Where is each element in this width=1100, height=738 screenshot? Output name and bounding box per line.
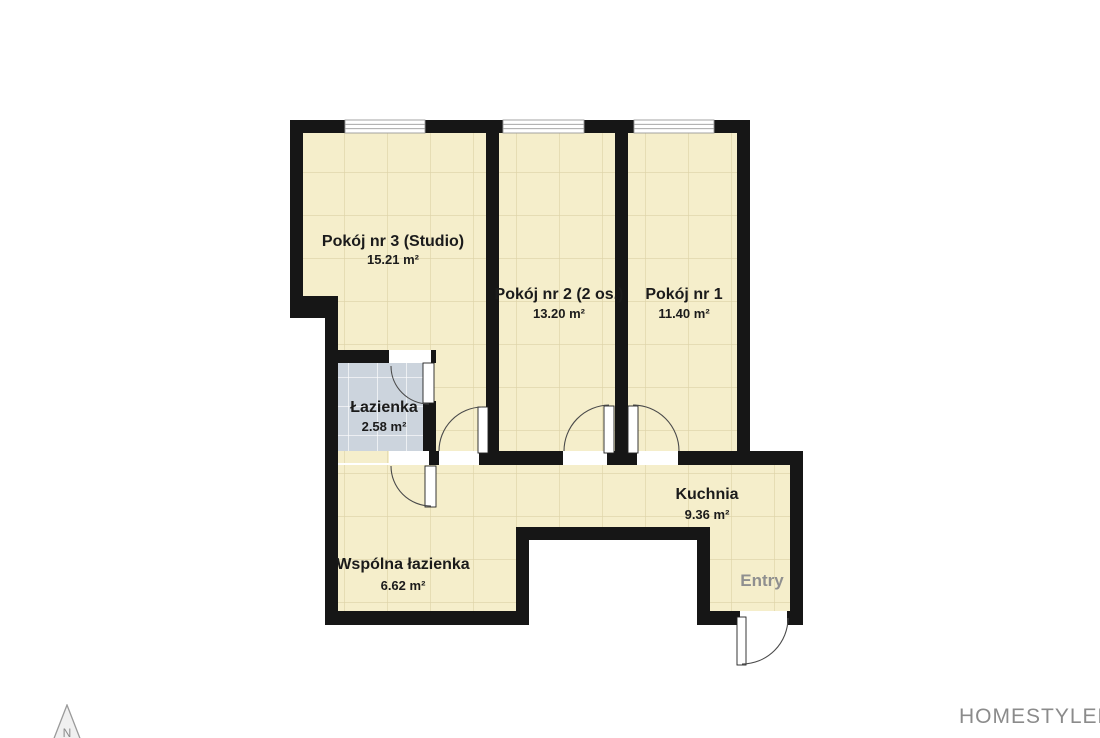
homestyler-logo-icon bbox=[912, 698, 950, 736]
room-name-label: Pokój nr 3 (Studio) bbox=[322, 233, 464, 250]
room-area-label: 2.58 m² bbox=[362, 419, 407, 434]
room-area-label: 15.21 m² bbox=[367, 252, 420, 267]
room-name-label: Entry bbox=[740, 571, 784, 590]
door-leaf bbox=[737, 617, 746, 665]
window bbox=[634, 120, 714, 133]
windows bbox=[345, 120, 714, 133]
door-opening bbox=[439, 451, 479, 465]
door-opening bbox=[563, 451, 607, 465]
wall bbox=[790, 451, 803, 625]
door-leaf bbox=[478, 407, 488, 453]
floor-plan-svg: Pokój nr 3 (Studio)15.21 m²Pokój nr 2 (2… bbox=[0, 0, 1100, 738]
wall bbox=[290, 120, 303, 318]
north-label: N bbox=[63, 726, 72, 738]
room-name-label: Wspólna łazienka bbox=[336, 556, 469, 573]
wall bbox=[516, 527, 529, 625]
room-floor bbox=[710, 527, 790, 611]
room-name-label: Pokój nr 2 (2 os.) bbox=[495, 286, 624, 303]
wall bbox=[516, 527, 710, 540]
door-opening bbox=[389, 451, 429, 465]
room-floor bbox=[303, 133, 486, 303]
room-name-label: Łazienka bbox=[350, 399, 418, 416]
wall bbox=[737, 120, 750, 465]
floor-plan-page: Pokój nr 3 (Studio)15.21 m²Pokój nr 2 (2… bbox=[0, 0, 1100, 738]
door-opening bbox=[389, 350, 431, 363]
room-name-label: Pokój nr 1 bbox=[645, 286, 722, 303]
room-area-label: 13.20 m² bbox=[533, 306, 586, 321]
wall bbox=[697, 527, 710, 625]
floors bbox=[303, 133, 790, 615]
door-leaf bbox=[425, 466, 436, 507]
door-opening bbox=[740, 611, 787, 625]
room-area-label: 11.40 m² bbox=[658, 306, 710, 321]
room-area-label: 6.62 m² bbox=[381, 578, 426, 593]
wall bbox=[325, 296, 338, 625]
door-opening bbox=[637, 451, 678, 465]
window bbox=[503, 120, 584, 133]
room-name-label: Kuchnia bbox=[675, 486, 738, 503]
homestyler-logo-text: HOMESTYLER bbox=[959, 705, 1100, 729]
door-leaf bbox=[604, 406, 614, 453]
door-leaf bbox=[628, 406, 638, 453]
north-arrow: N bbox=[52, 704, 88, 738]
homestyler-logo: HOMESTYLER bbox=[912, 698, 1100, 736]
room-area-label: 9.36 m² bbox=[685, 507, 730, 522]
floor-plan: Pokój nr 3 (Studio)15.21 m²Pokój nr 2 (2… bbox=[0, 0, 1100, 738]
wall bbox=[325, 611, 529, 625]
door-leaf bbox=[423, 363, 434, 403]
window bbox=[345, 120, 425, 133]
north-arrow-icon: N bbox=[52, 704, 88, 738]
